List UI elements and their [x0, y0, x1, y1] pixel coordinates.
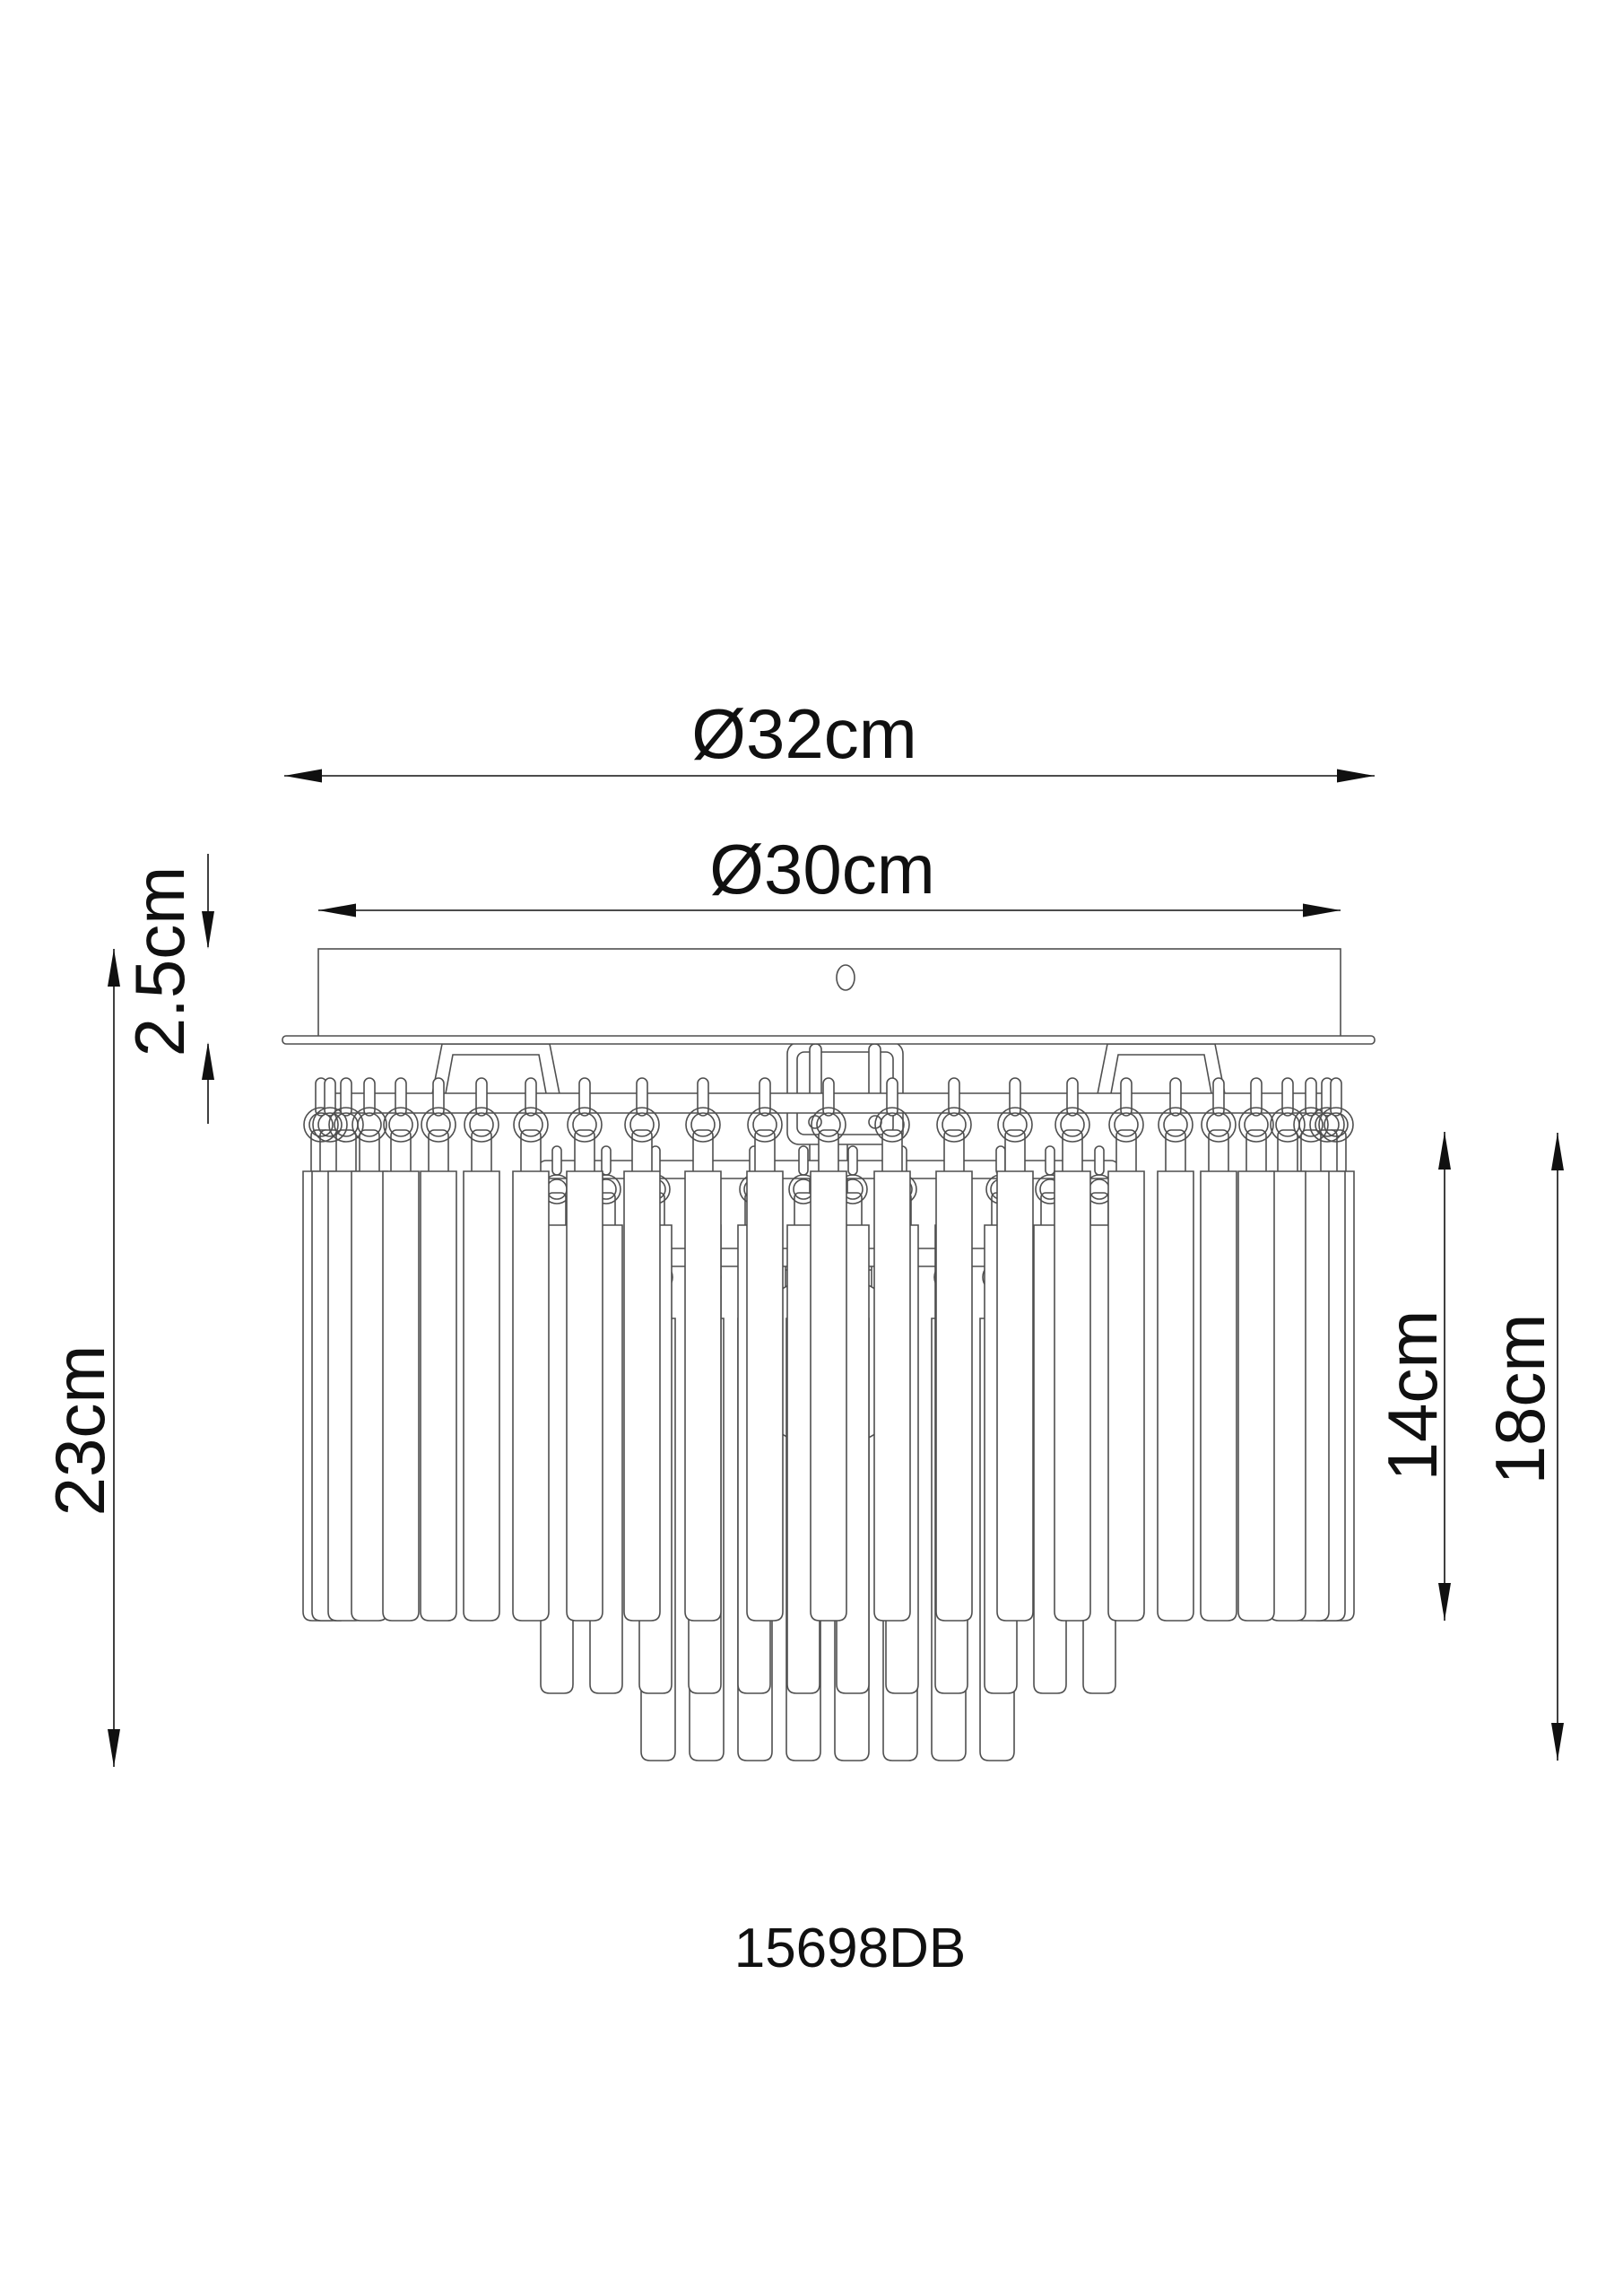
crystal-tier-1: [303, 1078, 1354, 1621]
arrowhead-down-icon: [202, 911, 214, 949]
dimension-crystal-body-height: 18cm: [1480, 1133, 1564, 1761]
dimension-total-height: 23cm: [40, 949, 120, 1767]
dimension-label-canopy-diameter: Ø30cm: [709, 830, 934, 909]
arrowhead-down-icon: [1551, 1723, 1564, 1761]
canopy-body: [318, 949, 1341, 1038]
canopy: [282, 949, 1375, 1044]
arrowhead-down-icon: [1438, 1583, 1451, 1621]
dimension-label-total-height: 23cm: [40, 1345, 119, 1517]
technical-drawing: Ø32cm Ø30cm 2.5cm 23cm 14cm 18cm 15698DB: [0, 0, 1623, 2296]
dimension-label-crystal-body-height: 18cm: [1480, 1314, 1559, 1485]
dimension-tier-height: 14cm: [1373, 1132, 1452, 1621]
dimension-label-canopy-height: 2.5cm: [120, 866, 199, 1057]
arrowhead-up-icon: [108, 949, 120, 987]
arrowhead-up-icon: [1438, 1132, 1451, 1170]
arrowhead-left-icon: [318, 904, 356, 918]
model-number: 15698DB: [734, 1918, 967, 1979]
arrowhead-left-icon: [284, 770, 322, 783]
arrowhead-down-icon: [108, 1729, 120, 1767]
dimension-label-plate-diameter: Ø32cm: [691, 694, 916, 773]
mounting-plate: [282, 1036, 1375, 1044]
arrowhead-up-icon: [1551, 1133, 1564, 1170]
arrowhead-up-icon: [202, 1042, 214, 1080]
dimension-label-tier-height: 14cm: [1373, 1310, 1452, 1482]
arrowhead-right-icon: [1303, 904, 1341, 918]
dimension-plate-diameter: Ø32cm: [284, 694, 1375, 783]
dimension-canopy-diameter: Ø30cm: [318, 830, 1341, 918]
drawing-canvas: Ø32cm Ø30cm 2.5cm 23cm 14cm 18cm 15698DB: [0, 0, 1623, 2296]
dimension-canopy-height: 2.5cm: [120, 854, 214, 1124]
arrowhead-right-icon: [1337, 770, 1375, 783]
